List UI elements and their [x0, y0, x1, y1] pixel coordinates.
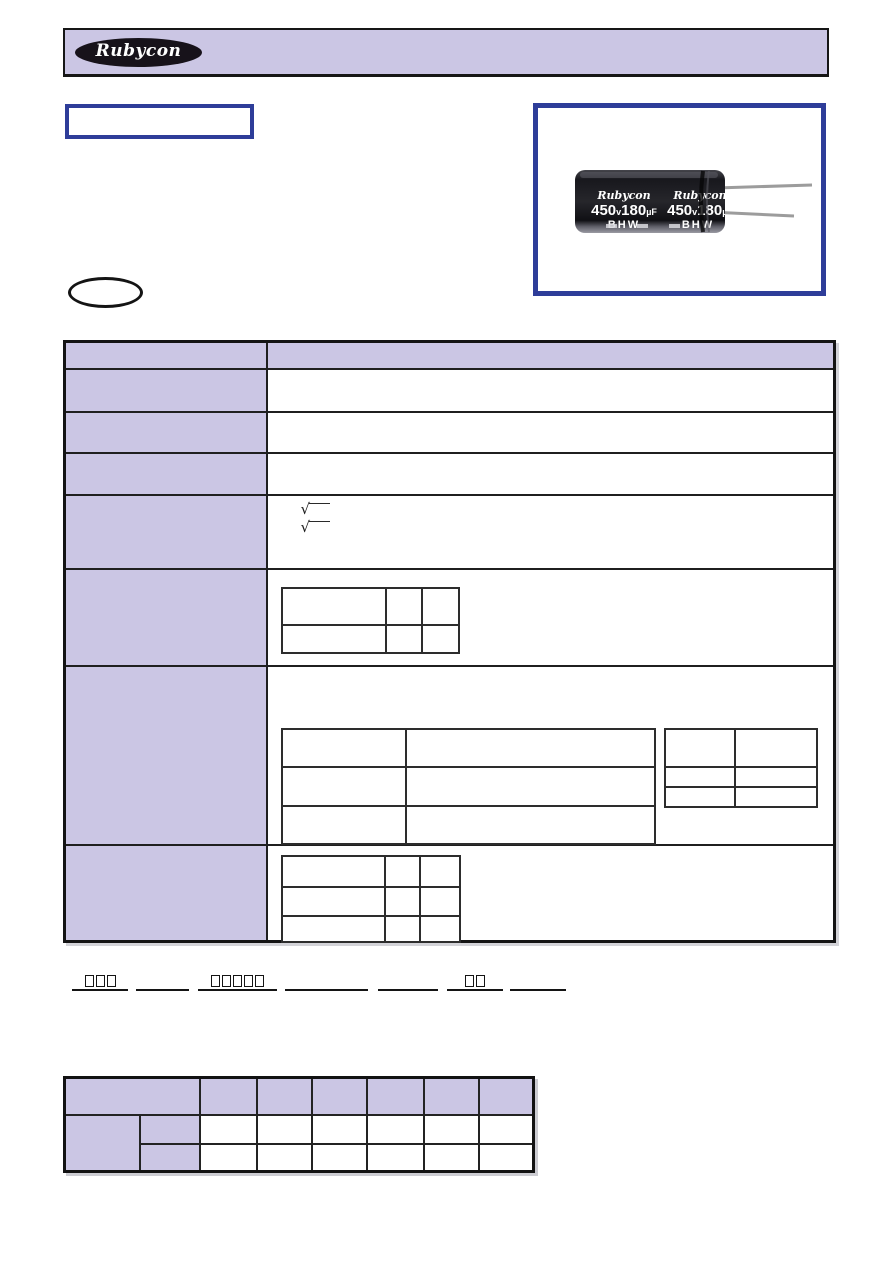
table-cell: [282, 887, 385, 916]
capacitor-photo: Rubycon 450v180µF BHW Rubycon 450v180µF …: [538, 108, 821, 291]
spec-row-cap-tolerance: [65, 453, 835, 495]
table-cell: [420, 916, 460, 942]
datasheet-page: Rubycon: [0, 0, 893, 1263]
frequency-coefficient-table: [63, 1076, 535, 1173]
radical-vinculum: [309, 521, 330, 531]
table-cell: [420, 887, 460, 916]
table-cell: [282, 588, 386, 625]
part-number-segment: [378, 973, 438, 991]
table-row: [665, 729, 817, 767]
table-header-cell: [479, 1078, 534, 1115]
spec-row-label: [65, 569, 267, 666]
specifications-table: √ √: [63, 340, 836, 943]
spec-row-leakage-current: √ √: [65, 495, 835, 569]
spec-row-rated-voltage: [65, 412, 835, 453]
impedance-ratio-table: [281, 855, 461, 943]
tan-delta-table: [281, 587, 460, 654]
series-name-box: [65, 104, 254, 139]
endurance-limits-table: [664, 728, 818, 808]
feature-ellipse: [68, 277, 143, 308]
table-header-cell: [257, 1078, 312, 1115]
spec-row-label: [65, 495, 267, 569]
sleeve-dash: [669, 224, 680, 228]
spec-row-endurance: [65, 666, 835, 845]
part-numbering-guide: [0, 973, 893, 995]
part-number-segment: [198, 973, 277, 991]
table-cell: [665, 787, 735, 807]
spec-row-label: [65, 666, 267, 845]
missing-glyph-box: [255, 975, 264, 987]
table-row: [65, 1115, 534, 1144]
table-row: [282, 625, 459, 653]
table-cell: [367, 1115, 424, 1144]
table-cell: [385, 916, 420, 942]
radical-vinculum: [309, 503, 330, 513]
missing-glyph-box: [211, 975, 220, 987]
table-cell: [282, 625, 386, 653]
table-cell: [200, 1144, 257, 1172]
spec-row-value: [267, 369, 835, 412]
rubycon-logo-text: Rubycon: [96, 43, 182, 60]
table-cell: [424, 1115, 479, 1144]
table-row: [282, 767, 655, 806]
missing-glyph-box: [476, 975, 485, 987]
spec-header-row: [65, 342, 835, 369]
part-number-segment: [136, 973, 189, 991]
capacitor-print-brand: Rubycon: [596, 189, 650, 202]
table-header-cell: [424, 1078, 479, 1115]
table-cell: [385, 887, 420, 916]
table-cell: [479, 1144, 534, 1172]
spec-row-label: [65, 845, 267, 942]
spec-row-label: [65, 412, 267, 453]
sleeve-dash: [637, 224, 648, 228]
table-row: [282, 916, 460, 942]
spec-row-label: [65, 453, 267, 495]
capacitor-highlight: [580, 172, 718, 178]
table-cell: [735, 767, 817, 787]
part-number-segment: [510, 973, 566, 991]
spec-row-value: [267, 569, 835, 666]
table-cell: [282, 916, 385, 942]
table-cell: [735, 787, 817, 807]
table-cell: [282, 856, 385, 887]
table-cell: [282, 806, 406, 844]
table-cell: [312, 1115, 367, 1144]
table-cell: [385, 856, 420, 887]
spec-header-value: [267, 342, 835, 369]
table-cell: [386, 588, 422, 625]
capacitor-lead-top: [716, 185, 812, 188]
spec-row-impedance-ratio: [65, 845, 835, 942]
row-group-label: [65, 1115, 140, 1172]
spec-row-value: [267, 453, 835, 495]
table-cell: [420, 856, 460, 887]
table-cell: [422, 588, 459, 625]
table-row: [282, 806, 655, 844]
sleeve-dash: [606, 224, 617, 228]
table-cell: [282, 729, 406, 767]
missing-glyph-box: [222, 975, 231, 987]
print-capacitance: 180: [621, 202, 646, 219]
table-row: [665, 787, 817, 807]
table-cell: [386, 625, 422, 653]
row-label: [140, 1115, 200, 1144]
missing-glyph-box: [233, 975, 242, 987]
table-cell: [479, 1115, 534, 1144]
table-cell: [367, 1144, 424, 1172]
table-row: [282, 588, 459, 625]
table-cell: [665, 729, 735, 767]
table-cell: [406, 806, 655, 844]
print-voltage: 450: [591, 202, 616, 219]
table-row: [282, 856, 460, 887]
table-cell: [200, 1115, 257, 1144]
leakage-current-formula: √ √: [267, 495, 835, 569]
formula-line: √: [301, 500, 834, 518]
spec-row-value: [267, 412, 835, 453]
capacitor-crimp: [701, 171, 703, 232]
table-cell: [257, 1144, 312, 1172]
print-capacitance-unit: µF: [646, 207, 657, 217]
part-number-segment: [447, 973, 503, 991]
brand-header-bar: Rubycon: [63, 28, 829, 77]
missing-glyph-box: [85, 975, 94, 987]
table-cell: [406, 767, 655, 806]
table-cell: [665, 767, 735, 787]
table-cell: [312, 1144, 367, 1172]
table-cell: [424, 1144, 479, 1172]
spec-row-category-temp: [65, 369, 835, 412]
table-row: [282, 887, 460, 916]
missing-glyph-box: [96, 975, 105, 987]
part-number-segment: [72, 973, 128, 991]
table-row: [282, 729, 655, 767]
spec-row-value: [267, 666, 835, 845]
spec-header-item: [65, 342, 267, 369]
table-header-cell: [200, 1078, 257, 1115]
table-cell: [735, 729, 817, 767]
spec-row-value: [267, 845, 835, 942]
endurance-conditions-table: [281, 728, 656, 845]
table-row: [665, 767, 817, 787]
missing-glyph-box: [244, 975, 253, 987]
table-cell: [422, 625, 459, 653]
missing-glyph-box: [107, 975, 116, 987]
table-cell: [282, 767, 406, 806]
table-header-cell: [65, 1078, 200, 1115]
product-photo-frame: Rubycon 450v180µF BHW Rubycon 450v180µF …: [533, 103, 826, 296]
rubycon-logo: Rubycon: [75, 38, 202, 67]
table-cell: [406, 729, 655, 767]
part-number-segment: [285, 973, 368, 991]
row-label: [140, 1144, 200, 1172]
table-header-cell: [312, 1078, 367, 1115]
table-header-row: [65, 1078, 534, 1115]
formula-line: √: [301, 518, 834, 536]
table-cell: [257, 1115, 312, 1144]
spec-row-label: [65, 369, 267, 412]
spec-row-tan-delta: [65, 569, 835, 666]
table-header-cell: [367, 1078, 424, 1115]
print-voltage: 450: [667, 202, 692, 219]
missing-glyph-box: [465, 975, 474, 987]
